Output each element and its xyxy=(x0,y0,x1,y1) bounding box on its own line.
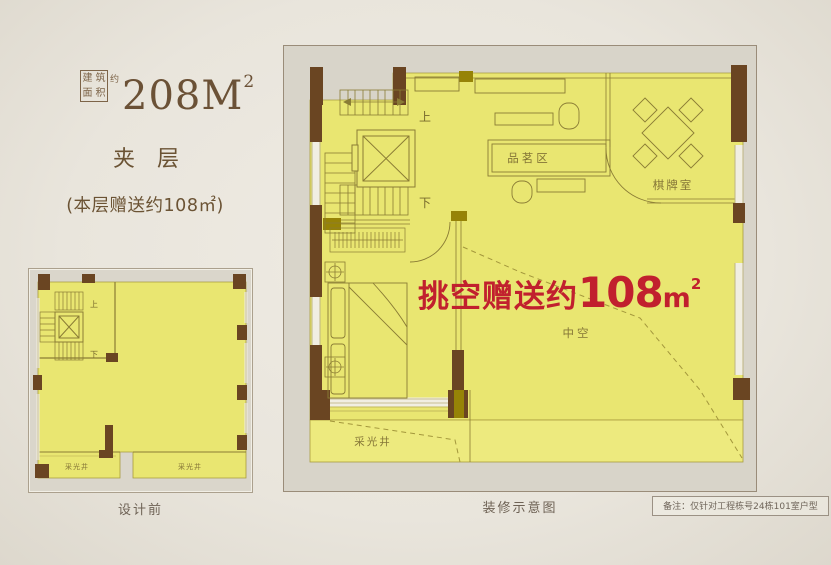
area-box-char: 建 xyxy=(83,74,93,84)
left-plan-caption: 设计前 xyxy=(28,499,253,518)
bonus-unit: m xyxy=(663,283,691,314)
floor-bonus-note: (本层赠送约108㎡) xyxy=(36,192,254,217)
elevator-shaft xyxy=(352,130,415,187)
bonus-sup: 2 xyxy=(691,275,701,293)
floorplan-before-design: 上 下 采光井 采光井 xyxy=(28,268,253,493)
title-block: 建 筑 面 积 约 208M2 xyxy=(80,60,254,118)
down-label: 下 xyxy=(419,196,431,210)
area-box-char: 积 xyxy=(96,89,106,99)
area-box-char: 筑 xyxy=(96,74,106,84)
small-plan-floor xyxy=(38,282,246,478)
chess-room-label: 棋牌室 xyxy=(653,178,694,192)
small-plan-down-label: 下 xyxy=(90,350,98,359)
bonus-area-overlay: 挑空赠送约108m2 xyxy=(418,268,701,317)
small-plan-elevator xyxy=(55,312,83,342)
void-label: 中空 xyxy=(563,326,592,340)
bonus-text: 挑空赠送约 xyxy=(418,279,578,315)
wall-block xyxy=(106,353,118,362)
area-superscript: 2 xyxy=(243,72,254,92)
small-plan-lightwell-label-b: 采光井 xyxy=(178,462,202,471)
building-area-box: 建 筑 面 积 xyxy=(80,70,108,102)
bonus-number: 108 xyxy=(578,268,663,317)
lightwell-label: 采光井 xyxy=(354,435,392,448)
area-approx-label: 约 xyxy=(110,72,119,85)
area-box-char: 面 xyxy=(83,89,93,99)
up-label: 上 xyxy=(419,110,431,124)
floor-name: 夹层 xyxy=(66,141,226,173)
total-area-value: 208M2 xyxy=(122,60,254,118)
small-plan-lightwell-label-a: 采光井 xyxy=(65,462,89,471)
tea-area-label: 品茗区 xyxy=(507,151,551,165)
small-plan-up-label: 上 xyxy=(90,300,98,309)
footnote-remark: 备注：仅针对工程栋号24栋101室户型 xyxy=(652,496,829,516)
